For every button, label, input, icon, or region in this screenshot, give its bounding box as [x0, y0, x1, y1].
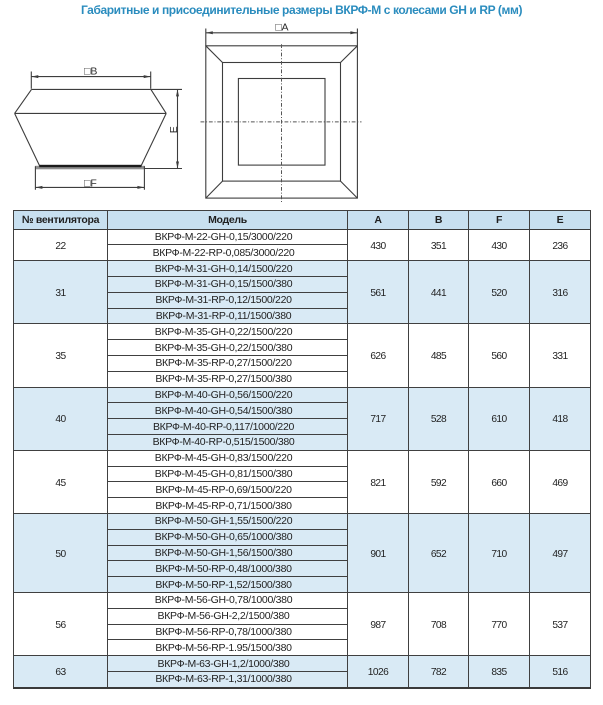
svg-text:□B: □B	[84, 65, 97, 77]
svg-text:□F: □F	[84, 177, 97, 189]
svg-text:□A: □A	[275, 22, 288, 34]
svg-text:E: E	[168, 126, 180, 133]
